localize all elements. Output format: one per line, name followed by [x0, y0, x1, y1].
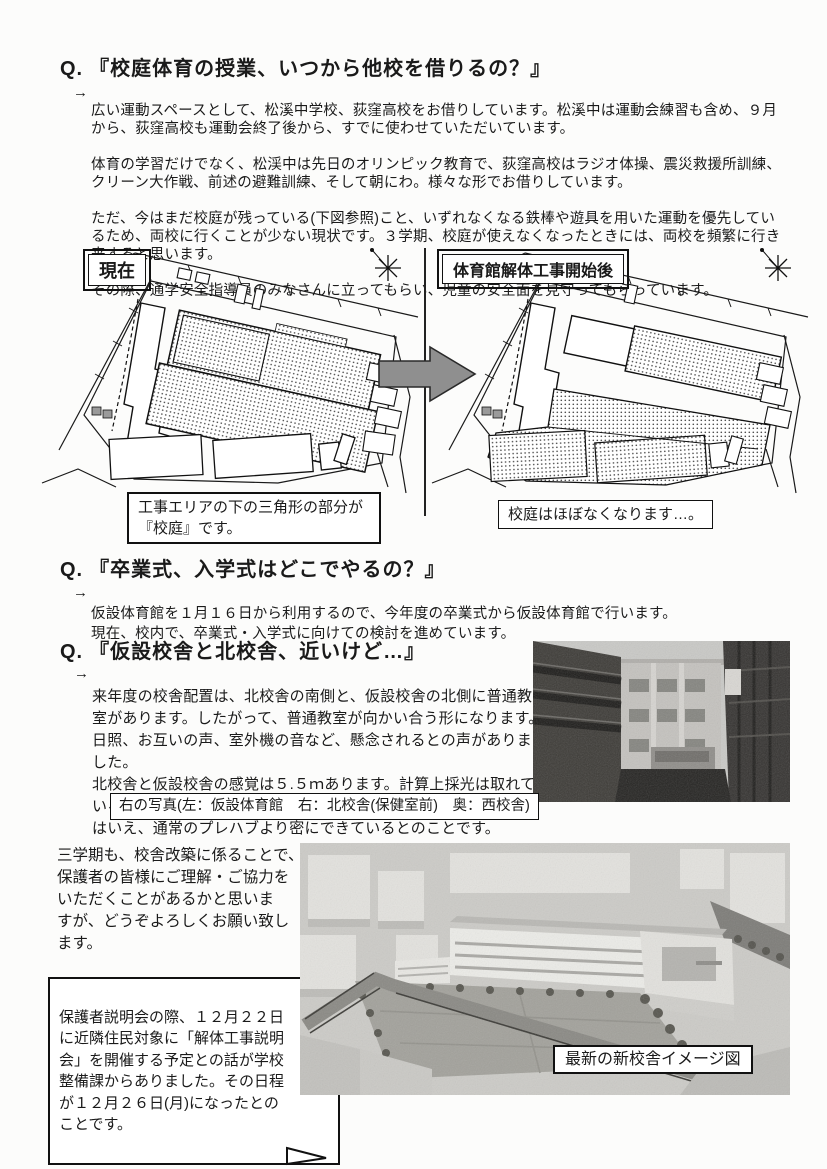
site-plan-after-demolition — [428, 247, 813, 499]
q2-heading: Q.『卒業式、入学式はどこでやるの？』 — [60, 553, 446, 582]
q1-question-text: 『校庭体育の授業、いつから他校を借りるの？』 — [89, 58, 551, 80]
q3-answer-arrow: → — [74, 665, 89, 682]
q3-photo-caption: 右の写真(左：仮設体育館 右：北校舎(保健室前) 奥：西校舎) — [110, 793, 539, 820]
compass-star-icon — [760, 248, 791, 281]
q1-paragraph-2: 体育の学習だけでなく、松渓中は先日のオリンピック教育で、荻窪高校はラジオ体操、震… — [91, 156, 797, 192]
q3-question-text: 『仮設校舎と北校舎、近いけど…』 — [89, 641, 425, 663]
demolition-notice-text: 保護者説明会の際、１２月２２日 に近隣住民対象に「解体工事説明 会」を開催する予… — [59, 1009, 284, 1134]
q3-q-label: Q. — [60, 641, 83, 663]
q1-q-label: Q. — [60, 58, 83, 80]
new-building-rendering-photo: 最新の新校舎イメージ図 — [300, 843, 790, 1095]
site-plan-figure: 現在 体育館解体工事開始後 工事エリアの下の三角形の部分が 『校庭』です。 校庭… — [0, 245, 827, 545]
newsletter-page: Q.『校庭体育の授業、いつから他校を借りるの？』 → 広い運動スペースとして、松… — [0, 0, 827, 1169]
figure-caption-current: 工事エリアの下の三角形の部分が 『校庭』です。 — [127, 492, 381, 544]
q3-heading: Q.『仮設校舎と北校舎、近いけど…』 — [60, 635, 425, 664]
q2-answer-arrow: → — [73, 584, 88, 601]
dogear-fold-icon — [286, 1146, 328, 1166]
q1-answer-arrow: → — [73, 84, 88, 101]
q3-answer: 来年度の校舎配置は、北校舎の南側と、仮設校舎の北側に普通教 室があります。したが… — [92, 664, 552, 862]
arrow-right-icon — [378, 344, 478, 404]
temporary-gym-alley-photo — [533, 641, 790, 802]
demolition-notice-box: 保護者説明会の際、１２月２２日 に近隣住民対象に「解体工事説明 会」を開催する予… — [48, 977, 340, 1165]
figure-label-current: 現在 — [88, 254, 146, 286]
q1-paragraph-1: 広い運動スペースとして、松溪中学校、荻窪高校をお借りしています。松溪中は運動会練… — [91, 102, 797, 138]
figure-label-after: 体育館解体工事開始後 — [442, 254, 624, 284]
q2-q-label: Q. — [60, 559, 83, 581]
closing-paragraph: 三学期も、校舎改築に係ることで、 保護者の皆様にご理解・ご協力を いただくことが… — [57, 845, 307, 955]
q2-question-text: 『卒業式、入学式はどこでやるの？』 — [89, 559, 445, 581]
compass-star-icon — [370, 248, 401, 281]
q1-heading: Q.『校庭体育の授業、いつから他校を借りるの？』 — [60, 52, 551, 81]
rendering-caption: 最新の新校舎イメージ図 — [553, 1045, 753, 1074]
figure-caption-after: 校庭はほぼなくなります…。 — [498, 500, 713, 529]
